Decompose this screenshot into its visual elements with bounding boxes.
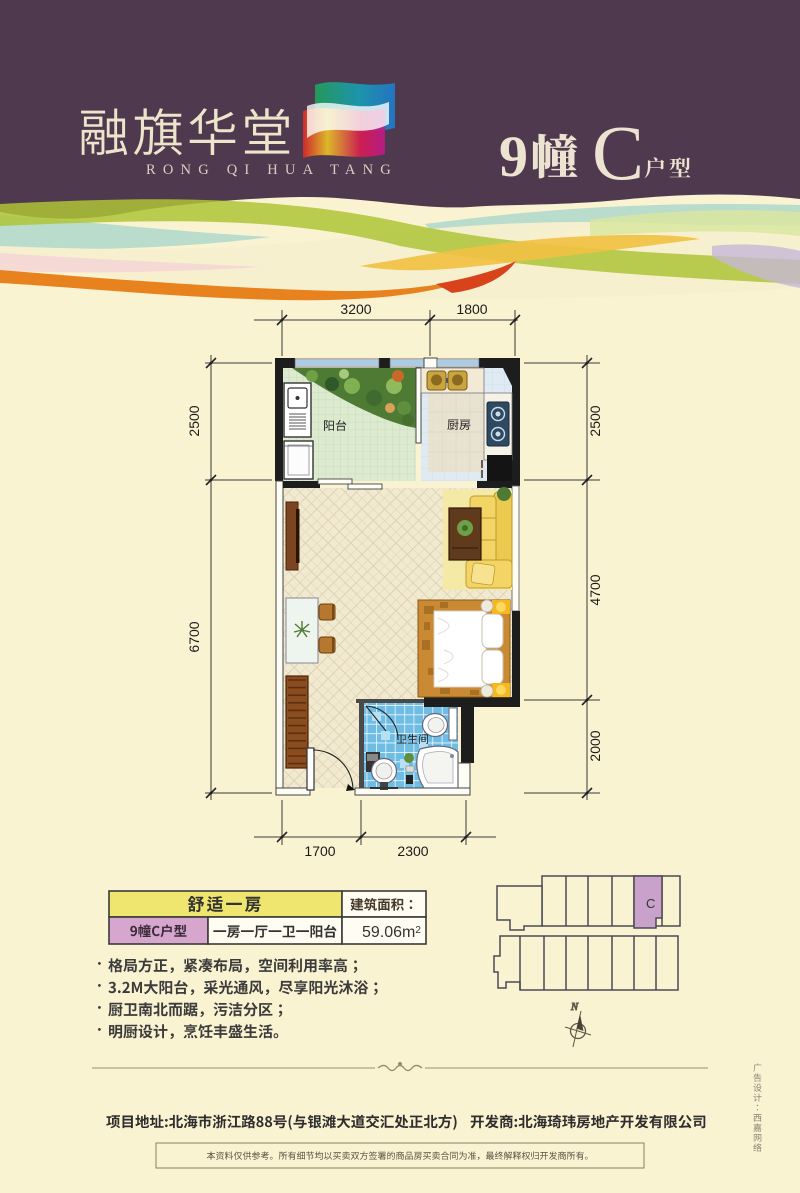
svg-text:2300: 2300	[397, 843, 428, 859]
svg-text:4700: 4700	[587, 574, 603, 605]
svg-text:C: C	[592, 109, 644, 196]
svg-text:2500: 2500	[587, 405, 603, 436]
svg-text:N: N	[570, 1002, 579, 1013]
svg-text:2000: 2000	[587, 730, 603, 761]
svg-text:3200: 3200	[340, 301, 371, 317]
svg-text:9: 9	[499, 124, 528, 189]
svg-text:RONG QI HUA TANG: RONG QI HUA TANG	[146, 162, 398, 178]
svg-text:1700: 1700	[304, 843, 335, 859]
svg-text:1800: 1800	[456, 301, 487, 317]
svg-text:C: C	[646, 896, 655, 911]
svg-text:2500: 2500	[186, 405, 202, 436]
svg-text:6700: 6700	[186, 621, 202, 652]
svg-text:59.06m2: 59.06m2	[362, 924, 421, 941]
